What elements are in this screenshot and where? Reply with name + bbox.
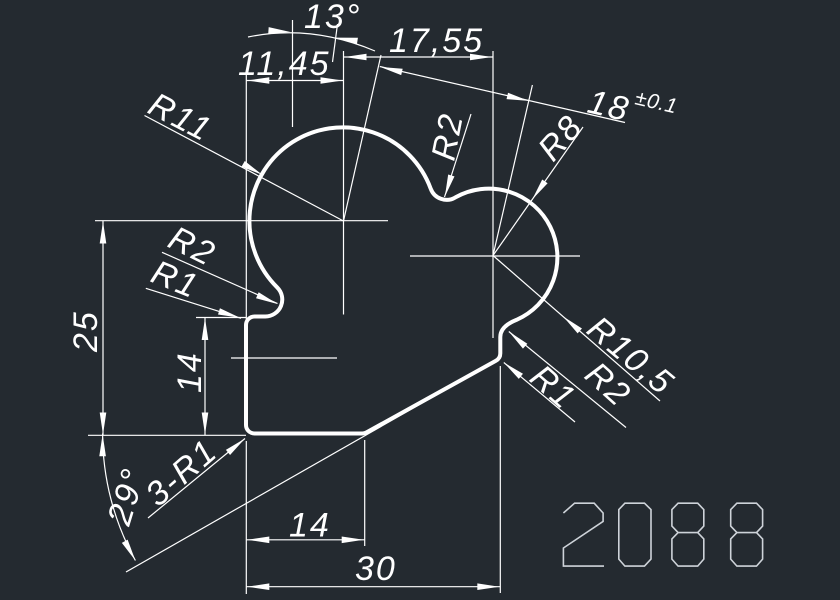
- svg-text:11,45: 11,45: [238, 45, 331, 83]
- svg-text:13°: 13°: [304, 0, 361, 36]
- svg-text:17,55: 17,55: [389, 22, 484, 60]
- svg-text:30: 30: [355, 550, 397, 588]
- svg-text:14: 14: [289, 507, 331, 545]
- svg-text:14: 14: [171, 351, 209, 393]
- svg-text:25: 25: [67, 310, 105, 353]
